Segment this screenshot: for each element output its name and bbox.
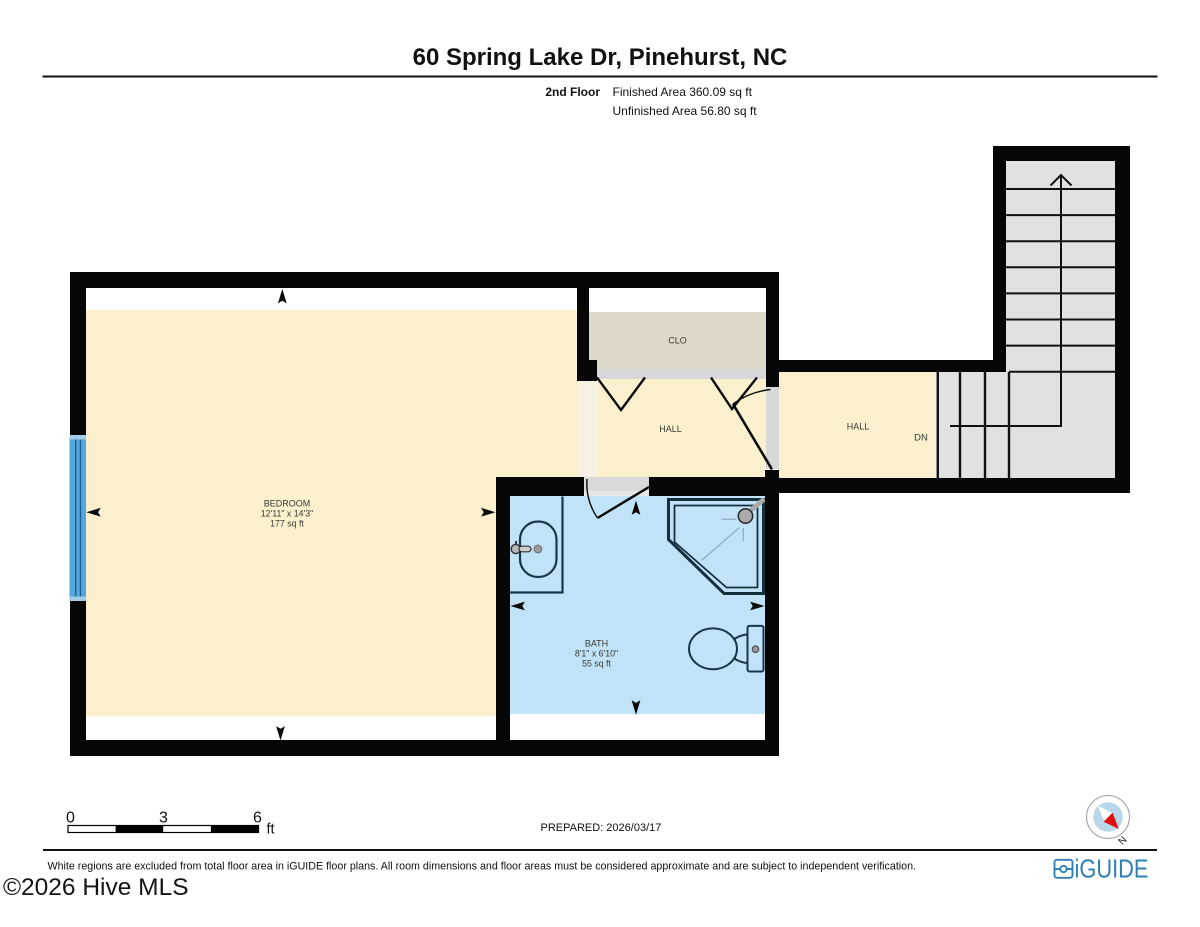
svg-text:ft: ft: [267, 822, 275, 838]
svg-text:60 Spring Lake Dr, Pinehurst,: 60 Spring Lake Dr, Pinehurst, NC: [413, 44, 788, 71]
svg-text:BEDROOM: BEDROOM: [264, 499, 311, 509]
svg-text:N: N: [1117, 835, 1130, 848]
svg-text:177 sq ft: 177 sq ft: [270, 519, 304, 529]
svg-text:55 sq ft: 55 sq ft: [582, 659, 611, 669]
svg-text:HALL: HALL: [659, 424, 682, 434]
svg-text:Unfinished Area 56.80 sq ft: Unfinished Area 56.80 sq ft: [613, 104, 758, 118]
svg-text:White regions are excluded fro: White regions are excluded from total fl…: [48, 861, 917, 873]
svg-text:12'11" x 14'3": 12'11" x 14'3": [261, 509, 314, 519]
svg-text:BATH: BATH: [585, 639, 608, 649]
svg-text:8'1" x 6'10": 8'1" x 6'10": [575, 649, 618, 659]
svg-text:3: 3: [159, 810, 168, 827]
svg-text:Finished Area 360.09 sq ft: Finished Area 360.09 sq ft: [613, 85, 753, 99]
svg-text:©2026 Hive MLS: ©2026 Hive MLS: [3, 874, 189, 901]
svg-text:DN: DN: [914, 433, 928, 444]
svg-text:HALL: HALL: [847, 422, 870, 432]
svg-text:PREPARED: 2026/03/17: PREPARED: 2026/03/17: [541, 822, 662, 834]
svg-text:CLO: CLO: [668, 336, 687, 346]
svg-text:6: 6: [253, 810, 262, 827]
svg-text:2nd Floor: 2nd Floor: [545, 85, 600, 99]
svg-text:iGUIDE: iGUIDE: [1075, 854, 1149, 884]
svg-text:0: 0: [66, 810, 75, 827]
